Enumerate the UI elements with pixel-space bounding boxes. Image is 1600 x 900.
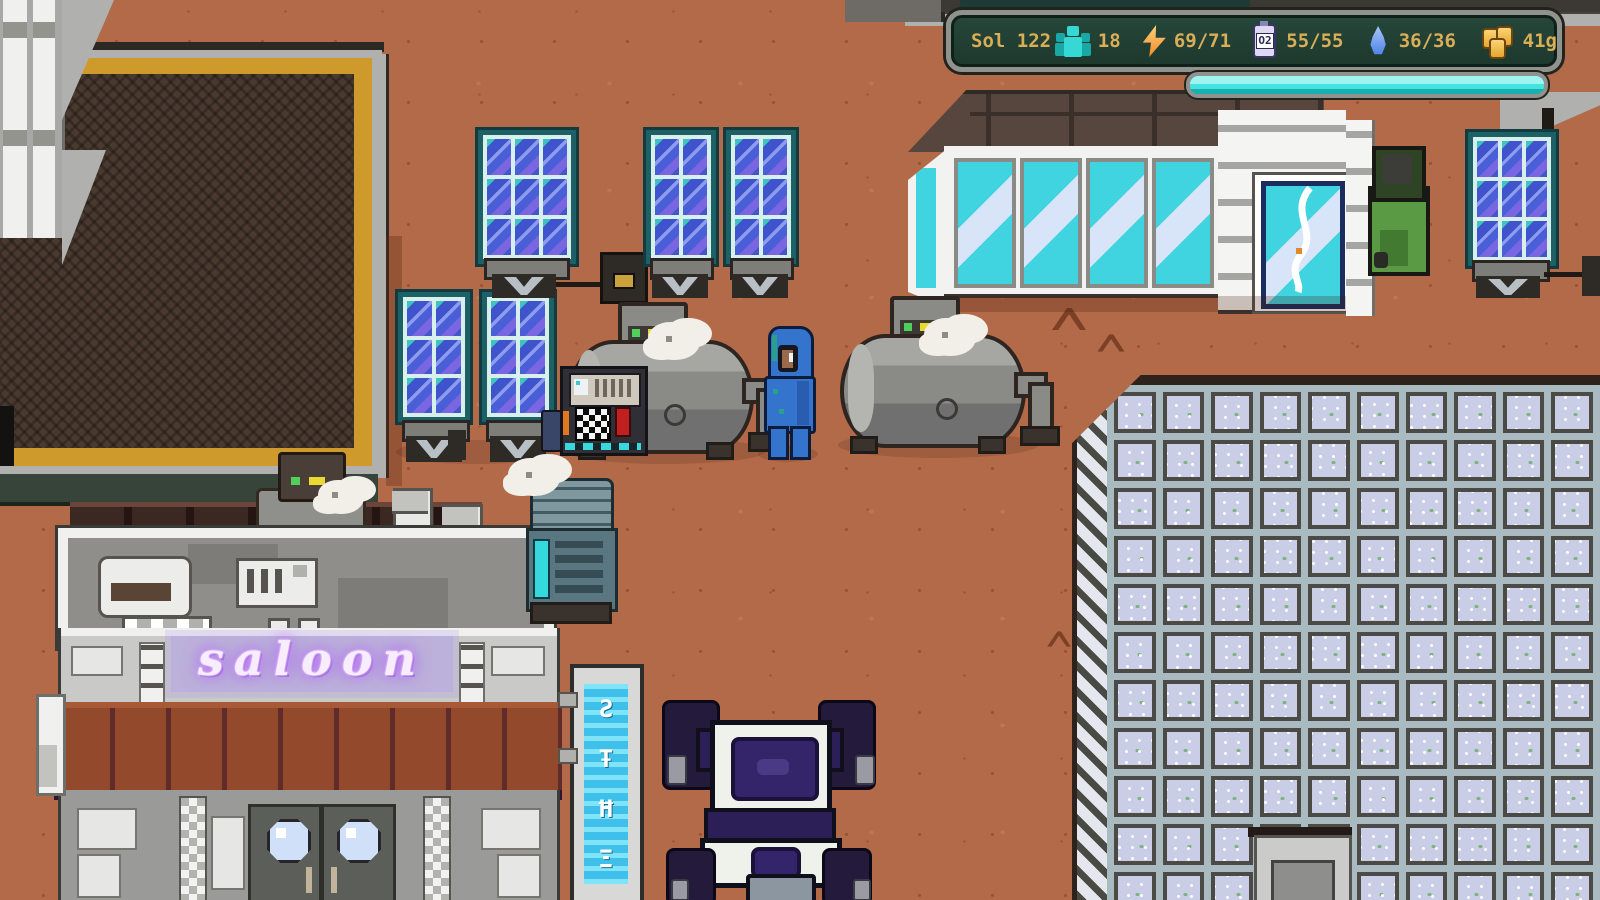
greenhouse-window: [1454, 488, 1496, 529]
solar-cell: [683, 179, 707, 215]
greenhouse-window: [1211, 488, 1253, 529]
rover-wheel: [666, 848, 716, 900]
solar-cell: [487, 179, 511, 215]
greenhouse-window: [1260, 728, 1302, 769]
solar-cell: [1477, 221, 1498, 257]
detail: [77, 808, 137, 850]
greenhouse-window: [1114, 632, 1156, 673]
greenhouse-window: [1551, 584, 1593, 625]
alien-glyph: Ŧ: [599, 745, 613, 773]
detail: [77, 854, 121, 898]
greenhouse-window: [1211, 584, 1253, 625]
door-reflection: [1266, 186, 1330, 294]
greenhouse-window: [1406, 440, 1448, 481]
saloon-doors[interactable]: [248, 804, 396, 900]
detail: [671, 879, 689, 900]
sign-bracket: [558, 748, 578, 764]
solar-cell: [436, 378, 461, 413]
generator[interactable]: [256, 452, 376, 540]
detail: [563, 411, 569, 435]
detail: [942, 332, 948, 338]
greenhouse-window: [1406, 632, 1448, 673]
habitat-roof-building: [0, 0, 402, 506]
solar-cell: [1526, 181, 1547, 217]
hud-status-bar: Sol 122 18 69/71 O2 55/55 36/36 41g: [946, 10, 1562, 72]
saloon-facade-lower: [58, 790, 560, 900]
detail: [1374, 252, 1388, 268]
greenhouse-window: [1503, 776, 1545, 817]
greenhouse-window: [1211, 872, 1253, 900]
greenhouse-window: [1357, 392, 1399, 433]
greenhouse-window: [1163, 440, 1205, 481]
detail: [338, 578, 448, 628]
detail: [261, 569, 268, 593]
detail: [211, 816, 245, 890]
greenhouse-window: [1503, 536, 1545, 577]
solar-cell: [520, 301, 545, 336]
greenhouse-window: [1551, 680, 1593, 721]
extractor-body: [526, 528, 618, 612]
greenhouse-window: [1308, 536, 1350, 577]
greenhouse-window: [1211, 776, 1253, 817]
door-window: [337, 819, 381, 863]
screen: [574, 379, 588, 395]
player-leg: [768, 426, 789, 460]
money-value: 41g: [1523, 30, 1557, 52]
detail: [772, 335, 777, 361]
greenhouse-window: [1260, 776, 1302, 817]
detail: [293, 565, 307, 577]
detail: [481, 808, 541, 850]
greenhouse-window: [1260, 584, 1302, 625]
solar-cell: [1502, 141, 1523, 177]
extractor-machine[interactable]: [516, 458, 616, 620]
detail: [565, 443, 641, 450]
greenhouse-window: [1114, 392, 1156, 433]
greenhouse-window: [1260, 392, 1302, 433]
detail: [504, 277, 544, 295]
detail: [845, 0, 945, 22]
qr-panel: [575, 407, 611, 441]
sign-bracket: [558, 692, 578, 708]
detail: [39, 745, 57, 787]
greenhouse-window: [1551, 488, 1593, 529]
alien-glyph: Ξ: [599, 845, 613, 873]
solar-cell: [436, 340, 461, 375]
greenhouse-window: [1406, 584, 1448, 625]
window-band: [944, 146, 1218, 298]
progress-bar: [1186, 72, 1548, 98]
solar-cell: [1526, 141, 1547, 177]
greenhouse-window: [1454, 584, 1496, 625]
smoke-puff: [648, 322, 700, 360]
dumpster[interactable]: [1368, 146, 1430, 272]
solar-cell: [407, 378, 432, 413]
detail: [667, 755, 687, 785]
rover-hatch: [731, 737, 819, 801]
glass-door[interactable]: [1252, 172, 1350, 314]
greenhouse-window: [1454, 680, 1496, 721]
greenhouse-window: [1163, 584, 1205, 625]
detail: [1064, 37, 1082, 57]
greenhouse-window: [1163, 872, 1205, 900]
progress-bar-fill: [1190, 76, 1544, 94]
detail: [666, 336, 672, 342]
detail: [855, 755, 875, 785]
cable-connector: [1582, 256, 1600, 296]
detail: [1067, 26, 1079, 36]
greenhouse-window: [1551, 440, 1593, 481]
detail: [960, 0, 1250, 9]
solar-panel: [478, 130, 576, 264]
greenhouse-window: [1357, 536, 1399, 577]
solar-panel-foot: [1476, 276, 1540, 298]
greenhouse-window: [1454, 728, 1496, 769]
solar-panel: [646, 130, 716, 264]
door-handle: [331, 867, 337, 893]
greenhouse-window: [1211, 392, 1253, 433]
detail: [247, 569, 254, 593]
detail: [332, 492, 338, 498]
greenhouse-window: [1114, 440, 1156, 481]
solar-cell: [655, 139, 679, 175]
roof-gold-trim: [352, 58, 372, 468]
solar-cell: [683, 219, 707, 255]
greenhouse-window: [1114, 728, 1156, 769]
greenhouse-window: [1308, 584, 1350, 625]
greenhouse-window: [1551, 632, 1593, 673]
detail: [757, 759, 789, 775]
colonists-value: 18: [1098, 30, 1121, 52]
greenhouse-window: [1503, 392, 1545, 433]
greenhouse-window: [1503, 728, 1545, 769]
solar-cell: [436, 301, 461, 336]
detail: [1489, 38, 1506, 59]
greenhouse-entrance[interactable]: [1254, 835, 1352, 900]
player-character: [758, 324, 818, 464]
greenhouse-window: [1503, 440, 1545, 481]
solar-cell: [515, 219, 539, 255]
greenhouse-window: [1357, 728, 1399, 769]
greenhouse-window: [1114, 680, 1156, 721]
greenhouse-window: [1308, 728, 1350, 769]
water-value: 36/36: [1399, 30, 1456, 52]
window: [954, 158, 1016, 288]
solar-panel-foot: [732, 274, 788, 298]
solar-cell: [683, 139, 707, 175]
solar-cell: [763, 139, 787, 175]
trash: [1382, 154, 1412, 184]
greenhouse-window: [1503, 824, 1545, 865]
greenhouse-window: [1308, 440, 1350, 481]
pilaster: [459, 642, 485, 704]
solar-cell: [491, 340, 516, 375]
detail: [416, 440, 452, 458]
detail: [392, 491, 428, 514]
side-sign: [36, 694, 66, 796]
extractor-tread: [530, 602, 612, 624]
sol-value: 122: [1017, 30, 1051, 52]
solar-cell: [655, 179, 679, 215]
detail: [491, 646, 545, 676]
solar-cell: [491, 378, 516, 413]
greenhouse-window: [1163, 392, 1205, 433]
greenhouse-window: [1357, 872, 1399, 900]
greenhouse-window: [1503, 632, 1545, 673]
rover-wheel: [822, 848, 872, 900]
solar-cell: [407, 301, 432, 336]
saloon-neon-sign: saloon: [171, 632, 453, 686]
entrance-door: [1271, 860, 1335, 900]
window: [1086, 158, 1148, 288]
greenhouse-window: [1260, 680, 1302, 721]
detail: [442, 507, 478, 530]
cable: [1544, 272, 1586, 277]
pilaster: [139, 642, 165, 704]
saloon-facade-upper: saloon: [58, 628, 560, 702]
solar-panel-foot: [492, 274, 556, 298]
greenhouse-window: [1406, 680, 1448, 721]
detail: [773, 389, 778, 394]
greenhouse-window: [1357, 440, 1399, 481]
greenhouse-window: [1357, 680, 1399, 721]
detail: [500, 440, 536, 458]
detail: [111, 583, 171, 601]
greenhouse-window: [1114, 824, 1156, 865]
greenhouse-window: [1211, 536, 1253, 577]
solar-cell: [543, 219, 567, 255]
detail: [797, 381, 809, 425]
door-handle: [306, 867, 312, 893]
detail: [742, 277, 778, 295]
tank-foot: [978, 436, 1006, 454]
greenhouse-window: [1211, 728, 1253, 769]
saloon-awning: [54, 702, 562, 800]
door-window: [267, 819, 311, 863]
rover[interactable]: [652, 692, 880, 900]
player-visor: [778, 345, 798, 372]
greenhouse-window: [1163, 776, 1205, 817]
saloon-building: saloon: [58, 528, 560, 900]
detail: [779, 409, 784, 414]
greenhouse-window: [1357, 824, 1399, 865]
rover-bumper: [746, 874, 816, 900]
pilaster: [423, 796, 451, 900]
greenhouse-edge-stripes: [1077, 375, 1107, 900]
greenhouse-window: [1454, 632, 1496, 673]
greenhouse-window: [1406, 776, 1448, 817]
solar-cell: [763, 219, 787, 255]
rover-top-panel: [710, 720, 832, 818]
greenhouse-window: [1551, 776, 1593, 817]
solar-panel: [1468, 132, 1556, 266]
rooftop-unit: [98, 556, 192, 618]
player-hood: [768, 326, 814, 382]
greenhouse-window: [1163, 680, 1205, 721]
greenhouse-window: [1406, 872, 1448, 900]
greenhouse-window: [1114, 776, 1156, 817]
greenhouse-window: [1163, 728, 1205, 769]
solar-cell: [487, 139, 511, 175]
solar-panel: [482, 292, 554, 422]
oxygen-icon-label: O2: [1256, 33, 1274, 49]
greenhouse-window: [1454, 824, 1496, 865]
greenhouse-building: [1072, 375, 1600, 900]
solar-cell: [543, 139, 567, 175]
greenhouse-window: [1308, 776, 1350, 817]
oxygen-value: 55/55: [1286, 30, 1343, 52]
detail: [1081, 33, 1090, 42]
greenhouse-window: [1211, 632, 1253, 673]
rivet: [664, 404, 686, 426]
greenhouse-window: [1163, 632, 1205, 673]
greenhouse-window: [1260, 632, 1302, 673]
solar-cell: [487, 219, 511, 255]
tank-foot: [850, 436, 878, 454]
greenhouse-window: [1163, 536, 1205, 577]
greenhouse-window: [1357, 488, 1399, 529]
greenhouse-window: [1114, 872, 1156, 900]
oxygen-icon: O2: [1253, 24, 1276, 58]
smoke-puff: [318, 480, 364, 514]
detail: [275, 569, 282, 593]
window: [1152, 158, 1214, 288]
detail: [346, 828, 356, 838]
tank-foot: [706, 442, 734, 460]
detail: [0, 406, 14, 466]
detail: [613, 273, 635, 289]
greenhouse-window: [1308, 680, 1350, 721]
greenhouse-window: [1308, 392, 1350, 433]
greenhouse-window: [1357, 632, 1399, 673]
greenhouse-window: [1260, 440, 1302, 481]
detail: [276, 828, 286, 838]
greenhouse-window: [1503, 584, 1545, 625]
pilaster: [179, 796, 207, 900]
greenhouse-window: [1503, 680, 1545, 721]
solar-cell: [1477, 141, 1498, 177]
solar-cell: [1502, 181, 1523, 217]
detail: [576, 381, 580, 385]
solar-cell: [735, 219, 759, 255]
solar-cell: [543, 179, 567, 215]
solar-cell: [735, 139, 759, 175]
greenhouse-grid: [1107, 385, 1600, 900]
greenhouse-window: [1551, 728, 1593, 769]
solar-cell: [520, 340, 545, 375]
door-divider: [319, 807, 324, 900]
greenhouse-window: [1454, 392, 1496, 433]
machine-top: [569, 373, 641, 407]
energy-icon: [1143, 25, 1166, 57]
sol-label: Sol: [971, 30, 1005, 52]
greenhouse-window: [1406, 824, 1448, 865]
smoke-puff: [508, 458, 560, 496]
greenhouse-window: [1357, 776, 1399, 817]
detail: [1005, 30, 1016, 52]
grill: [595, 379, 633, 397]
analyzer-machine[interactable]: [556, 366, 648, 458]
greenhouse-window: [1551, 392, 1593, 433]
machine-body: [560, 366, 648, 456]
solar-cell: [520, 378, 545, 413]
rooftop-tower: [0, 0, 65, 238]
solar-panel: [398, 292, 470, 422]
solar-panel-foot: [652, 274, 708, 298]
greenhouse-window: [1211, 680, 1253, 721]
dumpster-lid: [1372, 146, 1426, 202]
alien-glyph: Ħ: [599, 795, 613, 823]
energy-value: 69/71: [1174, 30, 1231, 52]
solar-panel: [726, 130, 796, 264]
greenhouse-window: [1114, 488, 1156, 529]
solar-cell: [735, 179, 759, 215]
greenhouse-window: [1454, 536, 1496, 577]
cable-connector: [448, 430, 466, 460]
detail: [3, 0, 27, 238]
greenhouse-window: [1114, 536, 1156, 577]
greenhouse-window: [1406, 392, 1448, 433]
solar-cell: [1526, 221, 1547, 257]
solar-cell: [1477, 181, 1498, 217]
greenhouse-window: [1357, 584, 1399, 625]
greenhouse-window: [1406, 488, 1448, 529]
greenhouse-window: [1454, 440, 1496, 481]
alien-glyph: Ƨ: [599, 695, 613, 723]
detail: [71, 646, 123, 676]
game-viewport: saloon: [0, 0, 1600, 900]
detail: [555, 541, 603, 593]
detail: [526, 472, 532, 478]
solar-cell: [1502, 221, 1523, 257]
status-light-green: [291, 477, 300, 485]
detail: [1260, 21, 1268, 26]
window: [1020, 158, 1082, 288]
gas-tank[interactable]: [828, 294, 1068, 454]
detail: [853, 879, 871, 900]
solar-cell: [515, 139, 539, 175]
greenhouse-window: [1260, 488, 1302, 529]
pipe-foot: [1020, 426, 1060, 446]
greenhouse-window: [1308, 632, 1350, 673]
detail: [848, 344, 874, 432]
solar-cell: [515, 179, 539, 215]
greenhouse-window: [1551, 824, 1593, 865]
greenhouse-window: [1114, 584, 1156, 625]
detail: [1488, 279, 1528, 295]
charge-box[interactable]: [600, 252, 648, 304]
greenhouse-window: [1551, 872, 1593, 900]
greenhouse-window: [1551, 536, 1593, 577]
greenhouse-window: [1503, 488, 1545, 529]
barrel[interactable]: [541, 410, 562, 452]
greenhouse-window: [1308, 488, 1350, 529]
greenhouse-window: [1260, 536, 1302, 577]
greenhouse-window: [1211, 440, 1253, 481]
greenhouse-window: [1211, 824, 1253, 865]
greenhouse-window: [1454, 872, 1496, 900]
detail: [662, 277, 698, 295]
money-icon: [1482, 26, 1515, 56]
window: [916, 168, 936, 288]
status-light-green: [632, 329, 640, 337]
solar-cell: [407, 340, 432, 375]
solar-cell: [763, 179, 787, 215]
sign-glyph-panel: Ƨ Ŧ Ħ Ξ: [584, 684, 628, 884]
greenhouse-window: [1163, 824, 1205, 865]
solar-cell: [491, 301, 516, 336]
corner-wall: [908, 148, 948, 308]
